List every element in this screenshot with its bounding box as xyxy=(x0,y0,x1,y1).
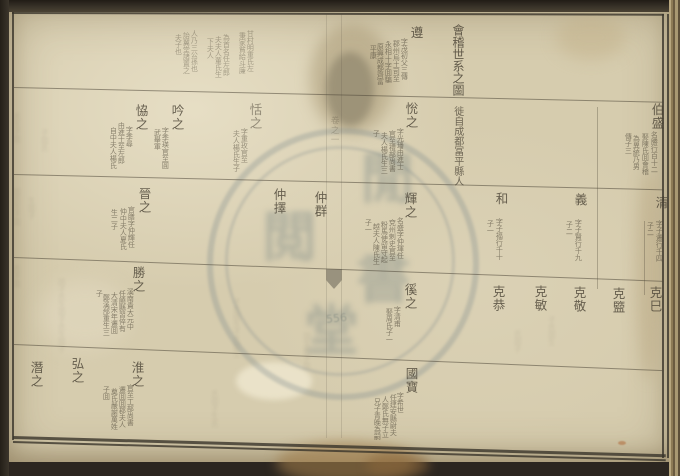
fold-number: 556 xyxy=(325,311,347,326)
person-note: 奠氏嚴謝萬姓 xyxy=(110,388,117,430)
person-note: 甘村明重氏左 xyxy=(246,30,253,72)
person-note: 夫夫人董氏生 xyxy=(214,36,221,78)
person-note: 越夫人陳氏生 xyxy=(372,223,379,265)
person-note: 大清宋年遷囬 xyxy=(110,292,117,334)
person-name: 克敏 xyxy=(533,285,547,312)
person-note: 字季尋 xyxy=(125,126,132,147)
person-note: 字光璠由進士 xyxy=(396,128,403,170)
person-note: 夫人楊氏生三 xyxy=(380,132,387,174)
person-note: 子囬 xyxy=(102,386,109,400)
person-name: 吟之 xyxy=(170,104,184,131)
fold-line-left xyxy=(326,14,327,438)
person-note: 秉家貧給斗廉 xyxy=(238,32,245,74)
person-note: 字茂初父三傳 xyxy=(400,38,407,80)
person-note: 字子遷行千四 xyxy=(655,220,662,262)
bleedthrough-mark: 氏囬子生氏 xyxy=(210,390,218,428)
person-note: 官至工部尚書 xyxy=(126,384,133,426)
fold-line-right xyxy=(341,14,342,438)
person-name: 恬之 xyxy=(248,103,262,130)
person-note: 娶陳氏囬會稽 xyxy=(641,133,648,175)
person-note: 傳子三 xyxy=(624,133,631,154)
person-note: 子二 xyxy=(565,221,572,235)
frame-border-left xyxy=(12,12,14,440)
person-note: 子一 xyxy=(486,220,493,234)
row-rule-4 xyxy=(14,344,664,371)
person-name: 伯盛 xyxy=(650,103,664,130)
person-note: 兗州剌史官至 xyxy=(388,219,395,261)
person-note: 子二 xyxy=(646,222,653,236)
frame-border-top xyxy=(12,12,664,16)
person-note: 生二子 xyxy=(110,209,117,230)
person-name: 仲擇 xyxy=(272,188,286,215)
print-layer: 卷之一 556 會稽世系之圖 徙自成都冨平縣人 遵字茂初父三傳郡州烏土司至永相十… xyxy=(0,0,680,476)
person-note: 兄子青晚為嗣 xyxy=(373,398,380,440)
person-note: 為異統乃男 xyxy=(632,135,639,170)
person-name: 恱之 xyxy=(404,102,418,129)
person-name: 和 xyxy=(494,192,508,206)
book-fore-edge-pages xyxy=(669,0,680,476)
frame-border-bottom-outer xyxy=(13,436,666,457)
person-name: 徯之 xyxy=(403,283,417,310)
bleedthrough-mark: 氏子囬 xyxy=(12,265,20,288)
person-note: 夫人楊氏生子 xyxy=(232,130,239,172)
fishtail-printer-mark xyxy=(326,269,342,289)
person-note: 字子賢行千九 xyxy=(574,219,581,261)
red-smudge xyxy=(618,441,626,445)
person-name: 恊之 xyxy=(134,104,148,131)
person-note: 官膳字仲輝任 xyxy=(127,206,134,248)
person-note: 字希世 xyxy=(396,392,403,413)
chart-title: 會稽世系之圖 xyxy=(451,24,464,96)
bleedthrough-mark: 子氏囬生子氏囬生 xyxy=(232,298,240,358)
person-note: 遷囬囬郡夫人 xyxy=(118,386,125,428)
person-note: 平康 xyxy=(369,45,376,59)
person-note: 字季瑛官至圓 xyxy=(161,127,168,169)
person-note: 自中夫人楊氏 xyxy=(109,127,116,169)
person-name: 克恭 xyxy=(491,285,505,312)
person-note: 仲中夫人夏氏 xyxy=(119,208,126,250)
person-name: 晉之 xyxy=(137,187,151,214)
cell-rule-right-column xyxy=(597,107,598,289)
bleedthrough-mark: 囬子氏生囬子氏生囬子 xyxy=(57,278,65,353)
person-note: 詒翼堂諸置之 xyxy=(182,32,189,74)
person-name: 克盬 xyxy=(611,287,625,314)
person-note: 溪南貴大元中 xyxy=(126,288,133,330)
bleedthrough-mark: 子囬氏 xyxy=(40,129,48,152)
person-name: 遵 xyxy=(409,26,423,40)
person-name: 義 xyxy=(573,193,587,207)
row-rule-1 xyxy=(14,87,664,103)
person-note: 名盛字仲琿任 xyxy=(396,217,403,259)
photo-edge-left xyxy=(0,0,9,476)
bleedthrough-mark: 氏囬子 xyxy=(513,330,521,353)
person-note: 夫子也 xyxy=(174,34,181,55)
person-note: 人鄭氏無子立 xyxy=(381,396,388,438)
person-note: 郡州烏土司至 xyxy=(392,40,399,82)
person-note: 子一 xyxy=(364,219,371,233)
bleedthrough-mark: 囬生氏子囬 xyxy=(302,332,310,370)
person-note: 娶周氏子一 xyxy=(385,308,392,343)
person-note: 由進士至左郎 xyxy=(117,122,124,164)
person-note: 原興成都齊富 xyxy=(376,43,383,85)
fold-volume-label: 卷之一 xyxy=(329,116,338,145)
person-note: 下夫人 xyxy=(206,38,213,59)
bleedthrough-mark: 氏生子囬 xyxy=(12,113,20,143)
person-note: 名勝行百十二 xyxy=(650,131,657,173)
person-note: 永相十字囬騙 xyxy=(384,41,391,83)
person-name: 克敬 xyxy=(572,286,586,313)
person-name: 輝之 xyxy=(403,192,417,219)
person-note: 子 xyxy=(372,130,379,137)
person-note: 字子福行千十 xyxy=(495,218,502,260)
person-note: 字清甫 xyxy=(393,306,400,327)
person-note: 為首名任左郎 xyxy=(222,34,229,76)
cell-rule-qing-note xyxy=(644,221,645,295)
person-name: 清 xyxy=(654,196,668,210)
person-name: 弘之 xyxy=(70,357,84,384)
person-name: 仲群 xyxy=(313,191,327,218)
genealogy-book-photo: 閒 閲 書 堂 卷之一 556 會稽世系之圖 徙自成都冨平縣人 遵字茂初父三傳郡… xyxy=(0,0,680,476)
person-note: 鄭溪郃重生三 xyxy=(102,294,109,336)
person-name: 克巳 xyxy=(648,286,662,313)
person-note: 粉馬使留守起 xyxy=(380,221,387,263)
bleedthrough-mark: 囬氏生子囬 xyxy=(12,188,20,226)
person-note: 官至禮部尚書 xyxy=(388,130,395,172)
person-note: 子 xyxy=(95,290,102,297)
person-name: 潛之 xyxy=(29,361,43,388)
person-name: 國寶 xyxy=(404,367,418,394)
person-note: 任建安縣尉夫 xyxy=(389,394,396,436)
person-note: 字重玫官至 xyxy=(240,128,247,163)
row-rule-2 xyxy=(14,174,664,190)
origin-annotation: 徙自成都冨平縣人 xyxy=(451,106,462,186)
photo-edge-top xyxy=(0,0,680,12)
person-note: 任饒縣習倅有 xyxy=(118,290,125,332)
bleedthrough-mark: 子氏囬生 xyxy=(547,316,555,346)
person-note: 人乃三公孫也 xyxy=(190,30,197,72)
bleedthrough-mark: 生囬子 xyxy=(27,197,35,220)
person-note: 武舉軍 xyxy=(153,129,160,150)
